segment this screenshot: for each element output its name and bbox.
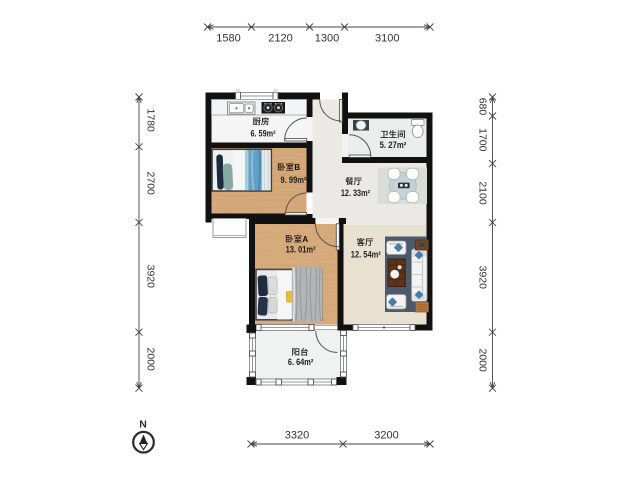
svg-text:2700: 2700 — [144, 172, 156, 196]
svg-text:680: 680 — [477, 98, 489, 116]
svg-text:6. 64m²: 6. 64m² — [288, 357, 313, 367]
svg-text:3320: 3320 — [285, 430, 309, 442]
svg-text:5. 27m²: 5. 27m² — [380, 140, 407, 150]
svg-text:3920: 3920 — [144, 265, 156, 289]
svg-text:3200: 3200 — [374, 430, 398, 442]
svg-text:1580: 1580 — [216, 32, 240, 44]
svg-text:6. 59m²: 6. 59m² — [251, 128, 276, 138]
svg-text:2000: 2000 — [477, 349, 489, 373]
svg-text:3920: 3920 — [477, 266, 489, 290]
svg-text:A: A — [302, 235, 308, 244]
svg-text:1700: 1700 — [477, 128, 489, 152]
svg-text:B: B — [294, 163, 300, 172]
svg-text:1300: 1300 — [315, 32, 339, 44]
svg-text:2000: 2000 — [144, 348, 156, 372]
svg-text:13. 01m²: 13. 01m² — [286, 245, 316, 255]
svg-text:3100: 3100 — [375, 32, 399, 44]
svg-text:12. 54m²: 12. 54m² — [351, 250, 381, 260]
svg-text:N: N — [139, 419, 147, 431]
svg-text:12. 33m²: 12. 33m² — [341, 188, 370, 198]
svg-text:9. 99m²: 9. 99m² — [281, 175, 307, 185]
svg-text:2100: 2100 — [477, 181, 489, 205]
svg-text:1780: 1780 — [144, 109, 156, 133]
svg-text:2120: 2120 — [268, 32, 292, 44]
